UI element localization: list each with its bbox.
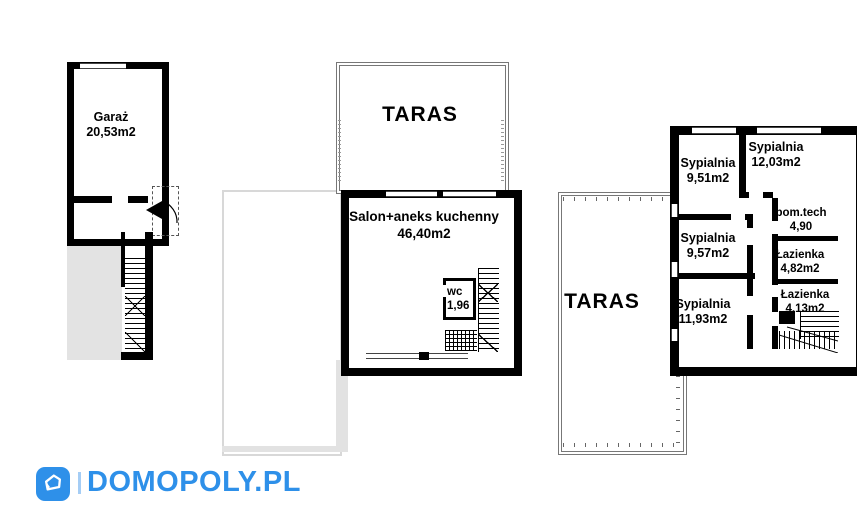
interior-wall (739, 192, 749, 198)
room-area: 20,53m2 (86, 125, 135, 139)
interior-wall (679, 273, 755, 279)
paving-area (67, 232, 122, 360)
taras-top (336, 62, 509, 194)
interior-wall (74, 196, 112, 203)
staircase-diagonal (478, 334, 498, 352)
taras-ticks-bottom (563, 443, 680, 447)
room-label-garage: Garaż 20,53m2 (67, 110, 155, 140)
hatched-area (445, 330, 477, 351)
taras-side-hatch (501, 120, 504, 182)
room-area: 46,40m2 (397, 226, 450, 241)
window (692, 127, 736, 134)
staircase-cross (478, 284, 498, 302)
stair-opening (127, 225, 146, 232)
wall-pier (419, 352, 429, 360)
room-label-lazienka-482: Łazienka 4,82m2 (762, 249, 838, 276)
room-label-pomtech: pom.tech 4,90 (766, 207, 836, 234)
room-name: Sypialnia (681, 231, 736, 245)
taras-ticks-top (563, 197, 680, 201)
side-terrace-slab (222, 190, 342, 456)
domopoly-logo-icon (36, 467, 70, 501)
window (671, 262, 678, 277)
salon-window-bottom (366, 353, 468, 359)
room-label-sypialnia-957: Sypialnia 9,57m2 (663, 231, 753, 261)
interior-wall (747, 220, 753, 228)
taras-text: TARAS (382, 103, 458, 126)
wc-door-opening (443, 285, 446, 297)
room-area: 11,93m2 (679, 312, 728, 326)
room-area: 4,82m2 (780, 263, 819, 275)
house-icon (40, 471, 66, 497)
taras-side-hatch (338, 120, 341, 182)
room-label-wc: wc 1,96 (447, 286, 469, 313)
corridor-wall (121, 352, 153, 360)
room-name: Sypialnia (676, 297, 731, 311)
room-name: Sypialnia (681, 156, 736, 170)
room-area: 9,51m2 (687, 171, 729, 185)
room-name: Łazienka (776, 249, 825, 261)
room-area: 1,96 (447, 300, 469, 312)
room-label-salon: Salon+aneks kuchenny 46,40m2 (346, 209, 502, 243)
room-label-sypialnia-1193: Sypialnia 11,93m2 (658, 297, 748, 327)
taras-label: TARAS (542, 290, 662, 314)
room-area: 12,03m2 (751, 155, 800, 169)
slab-shadow-bottom (222, 446, 338, 452)
staircase-diagonals (779, 311, 838, 353)
logo-wordmark: DOMOPOLY.PL (87, 466, 301, 498)
corridor-wall (145, 232, 153, 360)
room-name: Łazienka (781, 289, 830, 301)
interior-wall (772, 326, 778, 349)
room-name: Sypialnia (749, 140, 804, 154)
window (671, 204, 678, 217)
taras-text: TARAS (564, 290, 640, 313)
logo-divider (78, 472, 81, 494)
interior-wall (679, 214, 731, 220)
taras-label: TARAS (360, 103, 480, 127)
garage-window (80, 63, 126, 69)
room-name: Garaż (94, 110, 129, 124)
room-label-lazienka-413: Łazienka 4,13m2 (767, 289, 843, 316)
door-swing-icon (140, 198, 178, 228)
staircase-cross (125, 296, 145, 316)
room-area: 4,13m2 (785, 303, 824, 315)
room-name: Salon+aneks kuchenny (349, 209, 499, 224)
room-label-sypialnia-1203: Sypialnia 12,03m2 (731, 140, 821, 170)
window (757, 127, 821, 134)
interior-wall (747, 279, 753, 296)
wall-pier (437, 190, 443, 198)
room-name: pom.tech (775, 207, 826, 219)
room-name: wc (447, 286, 462, 298)
staircase-diagonal (125, 332, 145, 352)
window (671, 329, 678, 341)
room-area: 4,90 (790, 221, 812, 233)
room-area: 9,57m2 (687, 246, 729, 260)
taras-ticks-right (676, 365, 680, 443)
floorplan-sheet: Garaż 20,53m2 TARAS (0, 0, 857, 522)
interior-wall (778, 236, 838, 241)
logo-text: DOMOPOLY.PL (87, 466, 301, 499)
interior-wall (778, 279, 838, 284)
